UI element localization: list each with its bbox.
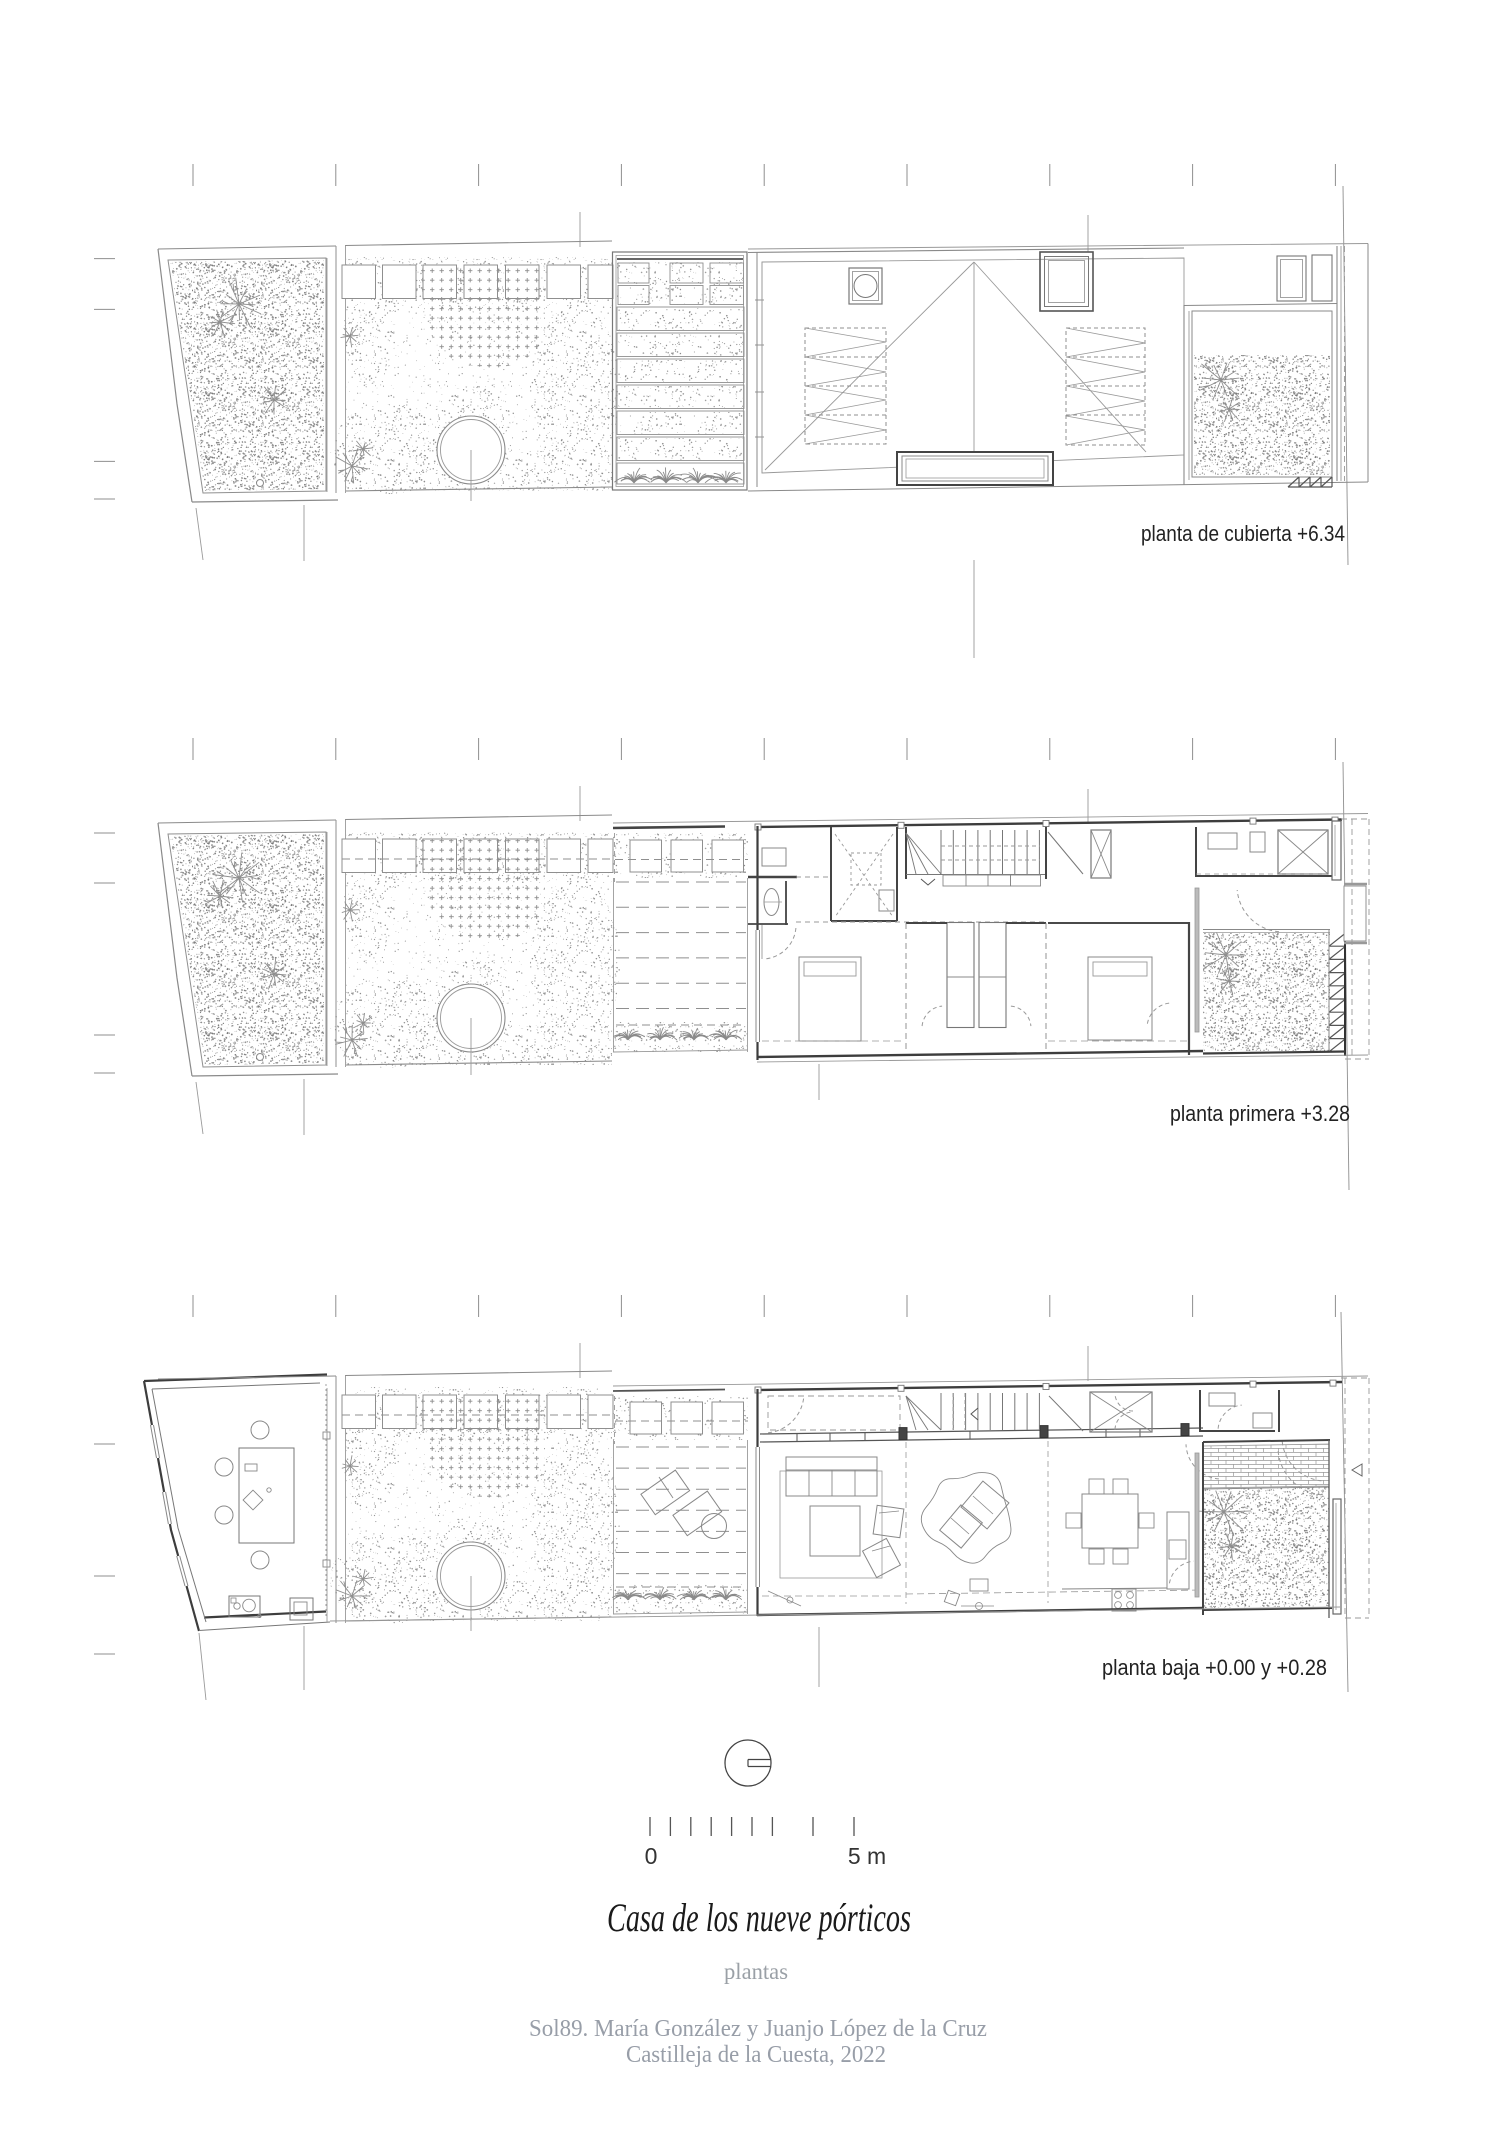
svg-text:planta de cubierta +6.34: planta de cubierta +6.34 <box>1141 521 1345 546</box>
svg-text:0: 0 <box>645 1843 658 1869</box>
svg-text:Castilleja de la Cuesta, 2022: Castilleja de la Cuesta, 2022 <box>626 2042 886 2068</box>
svg-text:plantas: plantas <box>724 1959 788 1984</box>
svg-text:planta baja +0.00 y +0.28: planta baja +0.00 y +0.28 <box>1102 1655 1327 1680</box>
svg-text:Casa de los nueve pórticos: Casa de los nueve pórticos <box>607 1895 911 1940</box>
svg-text:Sol89. María González y Juanjo: Sol89. María González y Juanjo López de … <box>529 2016 987 2042</box>
svg-text:5 m: 5 m <box>848 1843 886 1869</box>
svg-text:planta primera +3.28: planta primera +3.28 <box>1170 1101 1350 1126</box>
